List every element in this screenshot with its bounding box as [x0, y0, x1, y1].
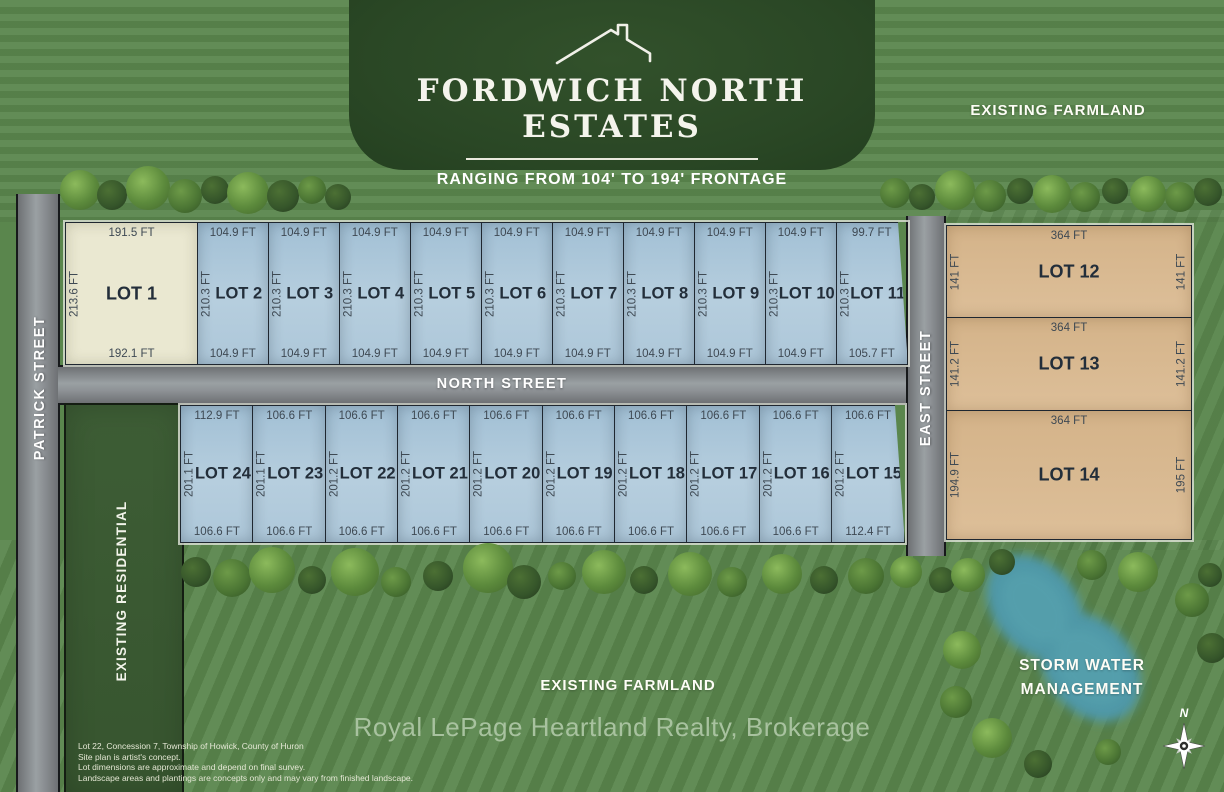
- tree: [582, 550, 626, 594]
- tree: [60, 170, 100, 210]
- tree: [1033, 175, 1071, 213]
- lot-8-bottom-dim: 104.9 FT: [624, 348, 695, 360]
- lot-11-top-dim: 99.7 FT: [837, 227, 908, 239]
- disclaimer-line: Site plan is artist's concept.: [78, 752, 413, 763]
- lot-13: 364 FT141.2 FT141.2 FTLOT 13: [946, 317, 1192, 412]
- lot-1-side-dim: 213.6 FT: [69, 254, 82, 334]
- lot-9-side-dim: 210.3 FT: [697, 254, 710, 334]
- lot-24-bottom-dim: 106.6 FT: [181, 526, 253, 538]
- title-block: FORDWICH NORTH ESTATES RANGING FROM 104'…: [349, 0, 875, 170]
- lot-9: 104.9 FT104.9 FT210.3 FTLOT 9: [694, 222, 767, 365]
- lot-3-side-dim: 210.3 FT: [271, 254, 284, 334]
- east-street-road: EAST STREET: [906, 216, 946, 556]
- lot-5: 104.9 FT104.9 FT210.3 FTLOT 5: [410, 222, 483, 365]
- lot-15-bottom-dim: 112.4 FT: [832, 526, 904, 538]
- lot-5-label: LOT 5: [428, 284, 475, 303]
- tree: [1175, 583, 1209, 617]
- lot-19-label: LOT 19: [557, 465, 613, 484]
- tree: [1024, 750, 1052, 778]
- tree: [1197, 633, 1224, 663]
- lot-22: 106.6 FT106.6 FT201.2 FTLOT 22: [325, 405, 399, 543]
- tree: [668, 552, 712, 596]
- disclaimer-line: Lot dimensions are approximate and depen…: [78, 762, 413, 773]
- lot-24-label: LOT 24: [195, 465, 251, 484]
- lot-4: 104.9 FT104.9 FT210.3 FTLOT 4: [339, 222, 412, 365]
- lot-16-label: LOT 16: [774, 465, 830, 484]
- tree: [762, 554, 802, 594]
- lot-19-top-dim: 106.6 FT: [543, 410, 615, 422]
- tree: [249, 547, 295, 593]
- lot-3-top-dim: 104.9 FT: [269, 227, 340, 239]
- lot-12: 364 FT141 FT141 FTLOT 12: [946, 225, 1192, 318]
- lot-22-bottom-dim: 106.6 FT: [326, 526, 398, 538]
- tree: [951, 558, 985, 592]
- north-street-label: NORTH STREET: [58, 376, 946, 392]
- lot-7-label: LOT 7: [570, 284, 617, 303]
- lot-5-top-dim: 104.9 FT: [411, 227, 482, 239]
- lot-column-east: 364 FT141 FT141 FTLOT 12364 FT141.2 FT14…: [946, 225, 1192, 540]
- lot-18-bottom-dim: 106.6 FT: [615, 526, 687, 538]
- house-roof-icon: [551, 22, 673, 66]
- lot-2-top-dim: 104.9 FT: [198, 227, 269, 239]
- tree: [201, 176, 229, 204]
- storm-water-line2: MANAGEMENT: [1019, 678, 1145, 702]
- lot-1-bottom-dim: 192.1 FT: [66, 348, 197, 360]
- lot-2-label: LOT 2: [215, 284, 262, 303]
- existing-farmland-label-top: EXISTING FARMLAND: [970, 102, 1145, 119]
- lot-17-top-dim: 106.6 FT: [687, 410, 759, 422]
- lot-13-left-dim: 141.2 FT: [950, 324, 963, 404]
- lot-18: 106.6 FT106.6 FT201.2 FTLOT 18: [614, 405, 688, 543]
- tree: [880, 178, 910, 208]
- brokerage-name: Royal LePage Heartland Realty, Brokerage: [0, 712, 1224, 743]
- lot-12-right-dim: 141 FT: [1176, 232, 1189, 312]
- tree: [1118, 552, 1158, 592]
- lot-23: 106.6 FT106.6 FT201.1 FTLOT 23: [252, 405, 326, 543]
- lot-8-side-dim: 210.3 FT: [626, 254, 639, 334]
- tree: [97, 180, 127, 210]
- lot-19: 106.6 FT106.6 FT201.2 FTLOT 19: [542, 405, 616, 543]
- tree: [1165, 182, 1195, 212]
- lot-1-label: LOT 1: [106, 283, 157, 304]
- lot-8-label: LOT 8: [641, 284, 688, 303]
- development-title: FORDWICH NORTH ESTATES: [349, 73, 875, 145]
- lot-21: 106.6 FT106.6 FT201.2 FTLOT 21: [397, 405, 471, 543]
- tree: [1198, 563, 1222, 587]
- lot-15: 106.6 FT112.4 FT201.2 FTLOT 15: [831, 405, 905, 543]
- lot-24-top-dim: 112.9 FT: [181, 410, 253, 422]
- lot-7: 104.9 FT104.9 FT210.3 FTLOT 7: [552, 222, 625, 365]
- lot-1: 191.5 FT192.1 FT213.6 FTLOT 1: [65, 222, 198, 365]
- tree: [298, 176, 326, 204]
- lot-6-label: LOT 6: [499, 284, 546, 303]
- tree: [227, 172, 269, 214]
- title-divider: [466, 158, 758, 160]
- tree: [548, 562, 576, 590]
- tree: [181, 557, 211, 587]
- lot-11: 99.7 FT105.7 FT210.3 FTLOT 11: [836, 222, 909, 365]
- patrick-street-road: PATRICK STREET: [16, 194, 60, 792]
- lot-5-side-dim: 210.3 FT: [413, 254, 426, 334]
- lot-21-label: LOT 21: [412, 465, 468, 484]
- lot-8-top-dim: 104.9 FT: [624, 227, 695, 239]
- tree: [267, 180, 299, 212]
- lot-6-bottom-dim: 104.9 FT: [482, 348, 553, 360]
- lot-12-top-dim: 364 FT: [947, 230, 1191, 242]
- lot-4-bottom-dim: 104.9 FT: [340, 348, 411, 360]
- lot-10-label: LOT 10: [779, 284, 835, 303]
- lot-20-label: LOT 20: [484, 465, 540, 484]
- lot-7-side-dim: 210.3 FT: [555, 254, 568, 334]
- lot-14-left-dim: 194.9 FT: [950, 435, 963, 515]
- lot-15-top-dim: 106.6 FT: [832, 410, 904, 422]
- tree: [325, 184, 351, 210]
- tree: [717, 567, 747, 597]
- lot-2-bottom-dim: 104.9 FT: [198, 348, 269, 360]
- lot-16-top-dim: 106.6 FT: [760, 410, 832, 422]
- lot-5-bottom-dim: 104.9 FT: [411, 348, 482, 360]
- tree: [298, 566, 326, 594]
- storm-water-line1: STORM WATER: [1019, 654, 1145, 678]
- lot-20: 106.6 FT106.6 FT201.2 FTLOT 20: [469, 405, 543, 543]
- tree: [974, 180, 1006, 212]
- tree: [630, 566, 658, 594]
- lot-24: 112.9 FT106.6 FT201.1 FTLOT 24: [180, 405, 254, 543]
- lot-row-south: 112.9 FT106.6 FT201.1 FTLOT 24106.6 FT10…: [180, 405, 905, 543]
- lot-17-bottom-dim: 106.6 FT: [687, 526, 759, 538]
- tree: [890, 556, 922, 588]
- lot-15-label: LOT 15: [846, 465, 902, 484]
- tree: [935, 170, 975, 210]
- lot-14-right-dim: 195 FT: [1176, 435, 1189, 515]
- lot-12-left-dim: 141 FT: [950, 232, 963, 312]
- lot-11-bottom-dim: 105.7 FT: [837, 348, 908, 360]
- tree: [423, 561, 453, 591]
- lot-20-bottom-dim: 106.6 FT: [470, 526, 542, 538]
- tree: [126, 166, 170, 210]
- lot-8: 104.9 FT104.9 FT210.3 FTLOT 8: [623, 222, 696, 365]
- lot-19-bottom-dim: 106.6 FT: [543, 526, 615, 538]
- lot-13-label: LOT 13: [1038, 354, 1099, 375]
- lot-3-label: LOT 3: [286, 284, 333, 303]
- compass-rose: N: [1158, 706, 1210, 786]
- tree: [989, 549, 1015, 575]
- lot-20-top-dim: 106.6 FT: [470, 410, 542, 422]
- patrick-street-label: PATRICK STREET: [32, 303, 48, 473]
- lot-23-bottom-dim: 106.6 FT: [253, 526, 325, 538]
- lot-10-top-dim: 104.9 FT: [766, 227, 837, 239]
- lot-7-bottom-dim: 104.9 FT: [553, 348, 624, 360]
- north-street-road: NORTH STREET: [58, 365, 946, 405]
- tree: [463, 543, 513, 593]
- tree: [1070, 182, 1100, 212]
- tree: [943, 631, 981, 669]
- compass-north-label: N: [1158, 706, 1210, 720]
- existing-residential-label: EXISTING RESIDENTIAL: [114, 471, 130, 711]
- lot-16: 106.6 FT106.6 FT201.2 FTLOT 16: [759, 405, 833, 543]
- lot-9-bottom-dim: 104.9 FT: [695, 348, 766, 360]
- lot-10: 104.9 FT104.9 FT210.3 FTLOT 10: [765, 222, 838, 365]
- frontage-subtitle: RANGING FROM 104' TO 194' FRONTAGE: [349, 171, 875, 189]
- storm-water-label: STORM WATER MANAGEMENT: [1019, 654, 1145, 702]
- lot-7-top-dim: 104.9 FT: [553, 227, 624, 239]
- lot-18-top-dim: 106.6 FT: [615, 410, 687, 422]
- tree: [168, 179, 202, 213]
- lot-4-side-dim: 210.3 FT: [342, 254, 355, 334]
- lot-4-label: LOT 4: [357, 284, 404, 303]
- disclaimer-note: Lot 22, Concession 7, Township of Howick…: [78, 741, 413, 783]
- tree: [848, 558, 884, 594]
- tree: [1102, 178, 1128, 204]
- lot-9-top-dim: 104.9 FT: [695, 227, 766, 239]
- east-street-label: EAST STREET: [918, 303, 934, 473]
- lot-23-label: LOT 23: [267, 465, 323, 484]
- lot-3-bottom-dim: 104.9 FT: [269, 348, 340, 360]
- lot-11-label: LOT 11: [850, 284, 905, 303]
- lot-16-bottom-dim: 106.6 FT: [760, 526, 832, 538]
- tree: [381, 567, 411, 597]
- lot-14-top-dim: 364 FT: [947, 415, 1191, 427]
- lot-2: 104.9 FT104.9 FT210.3 FTLOT 2: [197, 222, 270, 365]
- lot-13-right-dim: 141.2 FT: [1176, 324, 1189, 404]
- lot-22-top-dim: 106.6 FT: [326, 410, 398, 422]
- tree: [1007, 178, 1033, 204]
- lot-17-label: LOT 17: [701, 465, 757, 484]
- lot-6-side-dim: 210.3 FT: [484, 254, 497, 334]
- lot-3: 104.9 FT104.9 FT210.3 FTLOT 3: [268, 222, 341, 365]
- lot-1-top-dim: 191.5 FT: [66, 227, 197, 239]
- lot-row-north: 191.5 FT192.1 FT213.6 FTLOT 1104.9 FT104…: [65, 222, 908, 365]
- existing-farmland-label-bottom: EXISTING FARMLAND: [540, 677, 715, 694]
- lot-14-label: LOT 14: [1038, 465, 1099, 486]
- lot-18-label: LOT 18: [629, 465, 685, 484]
- tree: [1130, 176, 1166, 212]
- lot-10-bottom-dim: 104.9 FT: [766, 348, 837, 360]
- lot-9-label: LOT 9: [712, 284, 759, 303]
- disclaimer-line: Landscape areas and plantings are concep…: [78, 773, 413, 784]
- lot-21-bottom-dim: 106.6 FT: [398, 526, 470, 538]
- lot-21-top-dim: 106.6 FT: [398, 410, 470, 422]
- lot-22-label: LOT 22: [340, 465, 396, 484]
- tree: [1194, 178, 1222, 206]
- tree: [213, 559, 251, 597]
- tree: [507, 565, 541, 599]
- lot-13-top-dim: 364 FT: [947, 322, 1191, 334]
- lot-12-label: LOT 12: [1038, 261, 1099, 282]
- disclaimer-line: Lot 22, Concession 7, Township of Howick…: [78, 741, 413, 752]
- lot-6-top-dim: 104.9 FT: [482, 227, 553, 239]
- tree: [810, 566, 838, 594]
- lot-23-top-dim: 106.6 FT: [253, 410, 325, 422]
- tree: [909, 184, 935, 210]
- lot-4-top-dim: 104.9 FT: [340, 227, 411, 239]
- tree: [1077, 550, 1107, 580]
- lot-2-side-dim: 210.3 FT: [200, 254, 213, 334]
- tree: [331, 548, 379, 596]
- lot-17: 106.6 FT106.6 FT201.2 FTLOT 17: [686, 405, 760, 543]
- lot-6: 104.9 FT104.9 FT210.3 FTLOT 6: [481, 222, 554, 365]
- compass-star-icon: [1158, 720, 1210, 772]
- lot-14: 364 FT194.9 FT195 FTLOT 14: [946, 410, 1192, 540]
- site-plan: PATRICK STREET NORTH STREET EAST STREET …: [0, 0, 1224, 792]
